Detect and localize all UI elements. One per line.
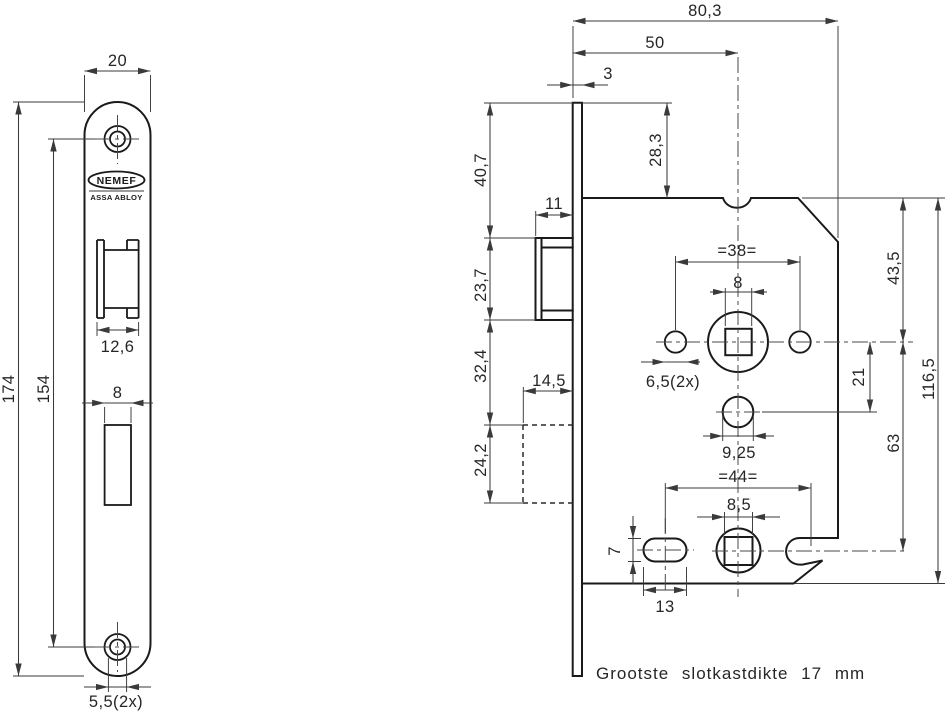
dim-43-5-label: 43,5	[885, 251, 903, 285]
latch-bolt-side	[536, 238, 573, 320]
dim-40-7-label: 40,7	[472, 153, 490, 187]
dim-deadbolt-protrusion-label: 14,5	[532, 372, 566, 390]
dim-slot-height-label: 7	[606, 546, 624, 556]
dim-spindle-hole-label: 8	[733, 274, 743, 292]
dim-latch-protrusion-label: 11	[545, 195, 563, 213]
dim-24-2-label: 24,2	[472, 443, 490, 477]
dim-slot-width-label: 13	[655, 598, 674, 616]
center-lines	[95, 57, 913, 672]
dim-23-7-label: 23,7	[472, 268, 490, 302]
dim-case-height-label: 116,5	[920, 358, 938, 400]
dim-latch-cutout-label: 12,6	[101, 338, 135, 356]
faceplate-side-strip	[573, 103, 582, 676]
dim-cylinder-dia-label: 9,25	[722, 444, 756, 462]
lock-technical-drawing: NEMEF ASSA ABLOY	[0, 0, 950, 714]
centerline-bottom-hole	[95, 622, 140, 672]
deadbolt-cutout-front	[105, 425, 131, 505]
dim-6-5-label: 6,5(2x)	[646, 373, 700, 391]
dim-screw-spacing-38-label: =38=	[717, 242, 756, 260]
dim-hole-dia-label: 5,5(2x)	[89, 693, 143, 711]
latch-cutout-front	[97, 240, 139, 318]
dim-backset-label: 50	[645, 34, 664, 52]
brand-logo: NEMEF ASSA ABLOY	[89, 172, 145, 203]
dim-plate-thickness-label: 3	[603, 65, 613, 83]
centerline-top-hole	[95, 115, 140, 164]
dim-case-depth-label: 80,3	[688, 2, 722, 20]
parent-brand-text: ASSA ABLOY	[90, 193, 142, 202]
dim-plate-length-label: 174	[0, 375, 18, 404]
drawing-note: Grootste slotkastdikte 17 mm	[596, 664, 865, 683]
dim-screw-spacing-label: 154	[35, 375, 53, 404]
deadbolt-hidden-side	[523, 425, 573, 503]
dim-32-4-label: 32,4	[472, 349, 490, 383]
dim-8-5-label: 8,5	[727, 496, 751, 514]
dim-deadbolt-cutout-label: 8	[113, 384, 123, 402]
dim-44-label: =44=	[718, 468, 757, 486]
dimension-labels: 20 174 154 12,6 8 5,5(2x) 80,3 50 3 40,7…	[0, 2, 938, 711]
dim-63-label: 63	[885, 433, 903, 452]
case-outline	[582, 198, 838, 584]
dim-plate-width-label: 20	[108, 52, 127, 70]
dim-28-3-label: 28,3	[647, 133, 665, 167]
logo-text: NEMEF	[97, 175, 137, 187]
dim-21-label: 21	[850, 367, 868, 386]
